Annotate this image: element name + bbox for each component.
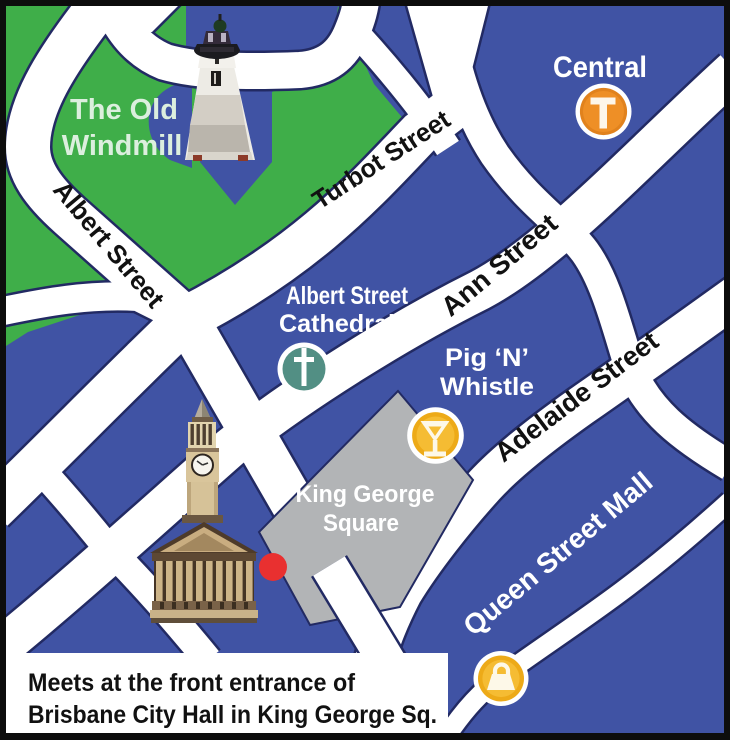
svg-text:Square: Square xyxy=(323,510,399,537)
svg-text:Brisbane City Hall in King Geo: Brisbane City Hall in King George Sq. xyxy=(28,701,437,729)
svg-text:Meets at the front entrance of: Meets at the front entrance of xyxy=(28,669,356,697)
svg-text:The Old: The Old xyxy=(70,94,178,126)
svg-text:Windmill: Windmill xyxy=(62,130,183,162)
svg-text:Cathedral: Cathedral xyxy=(279,310,395,338)
svg-text:King George: King George xyxy=(296,481,435,508)
svg-text:Pig ‘N’: Pig ‘N’ xyxy=(445,344,529,372)
svg-text:Whistle: Whistle xyxy=(440,373,534,401)
svg-text:Albert Street: Albert Street xyxy=(286,282,409,310)
svg-text:Central: Central xyxy=(553,51,647,84)
